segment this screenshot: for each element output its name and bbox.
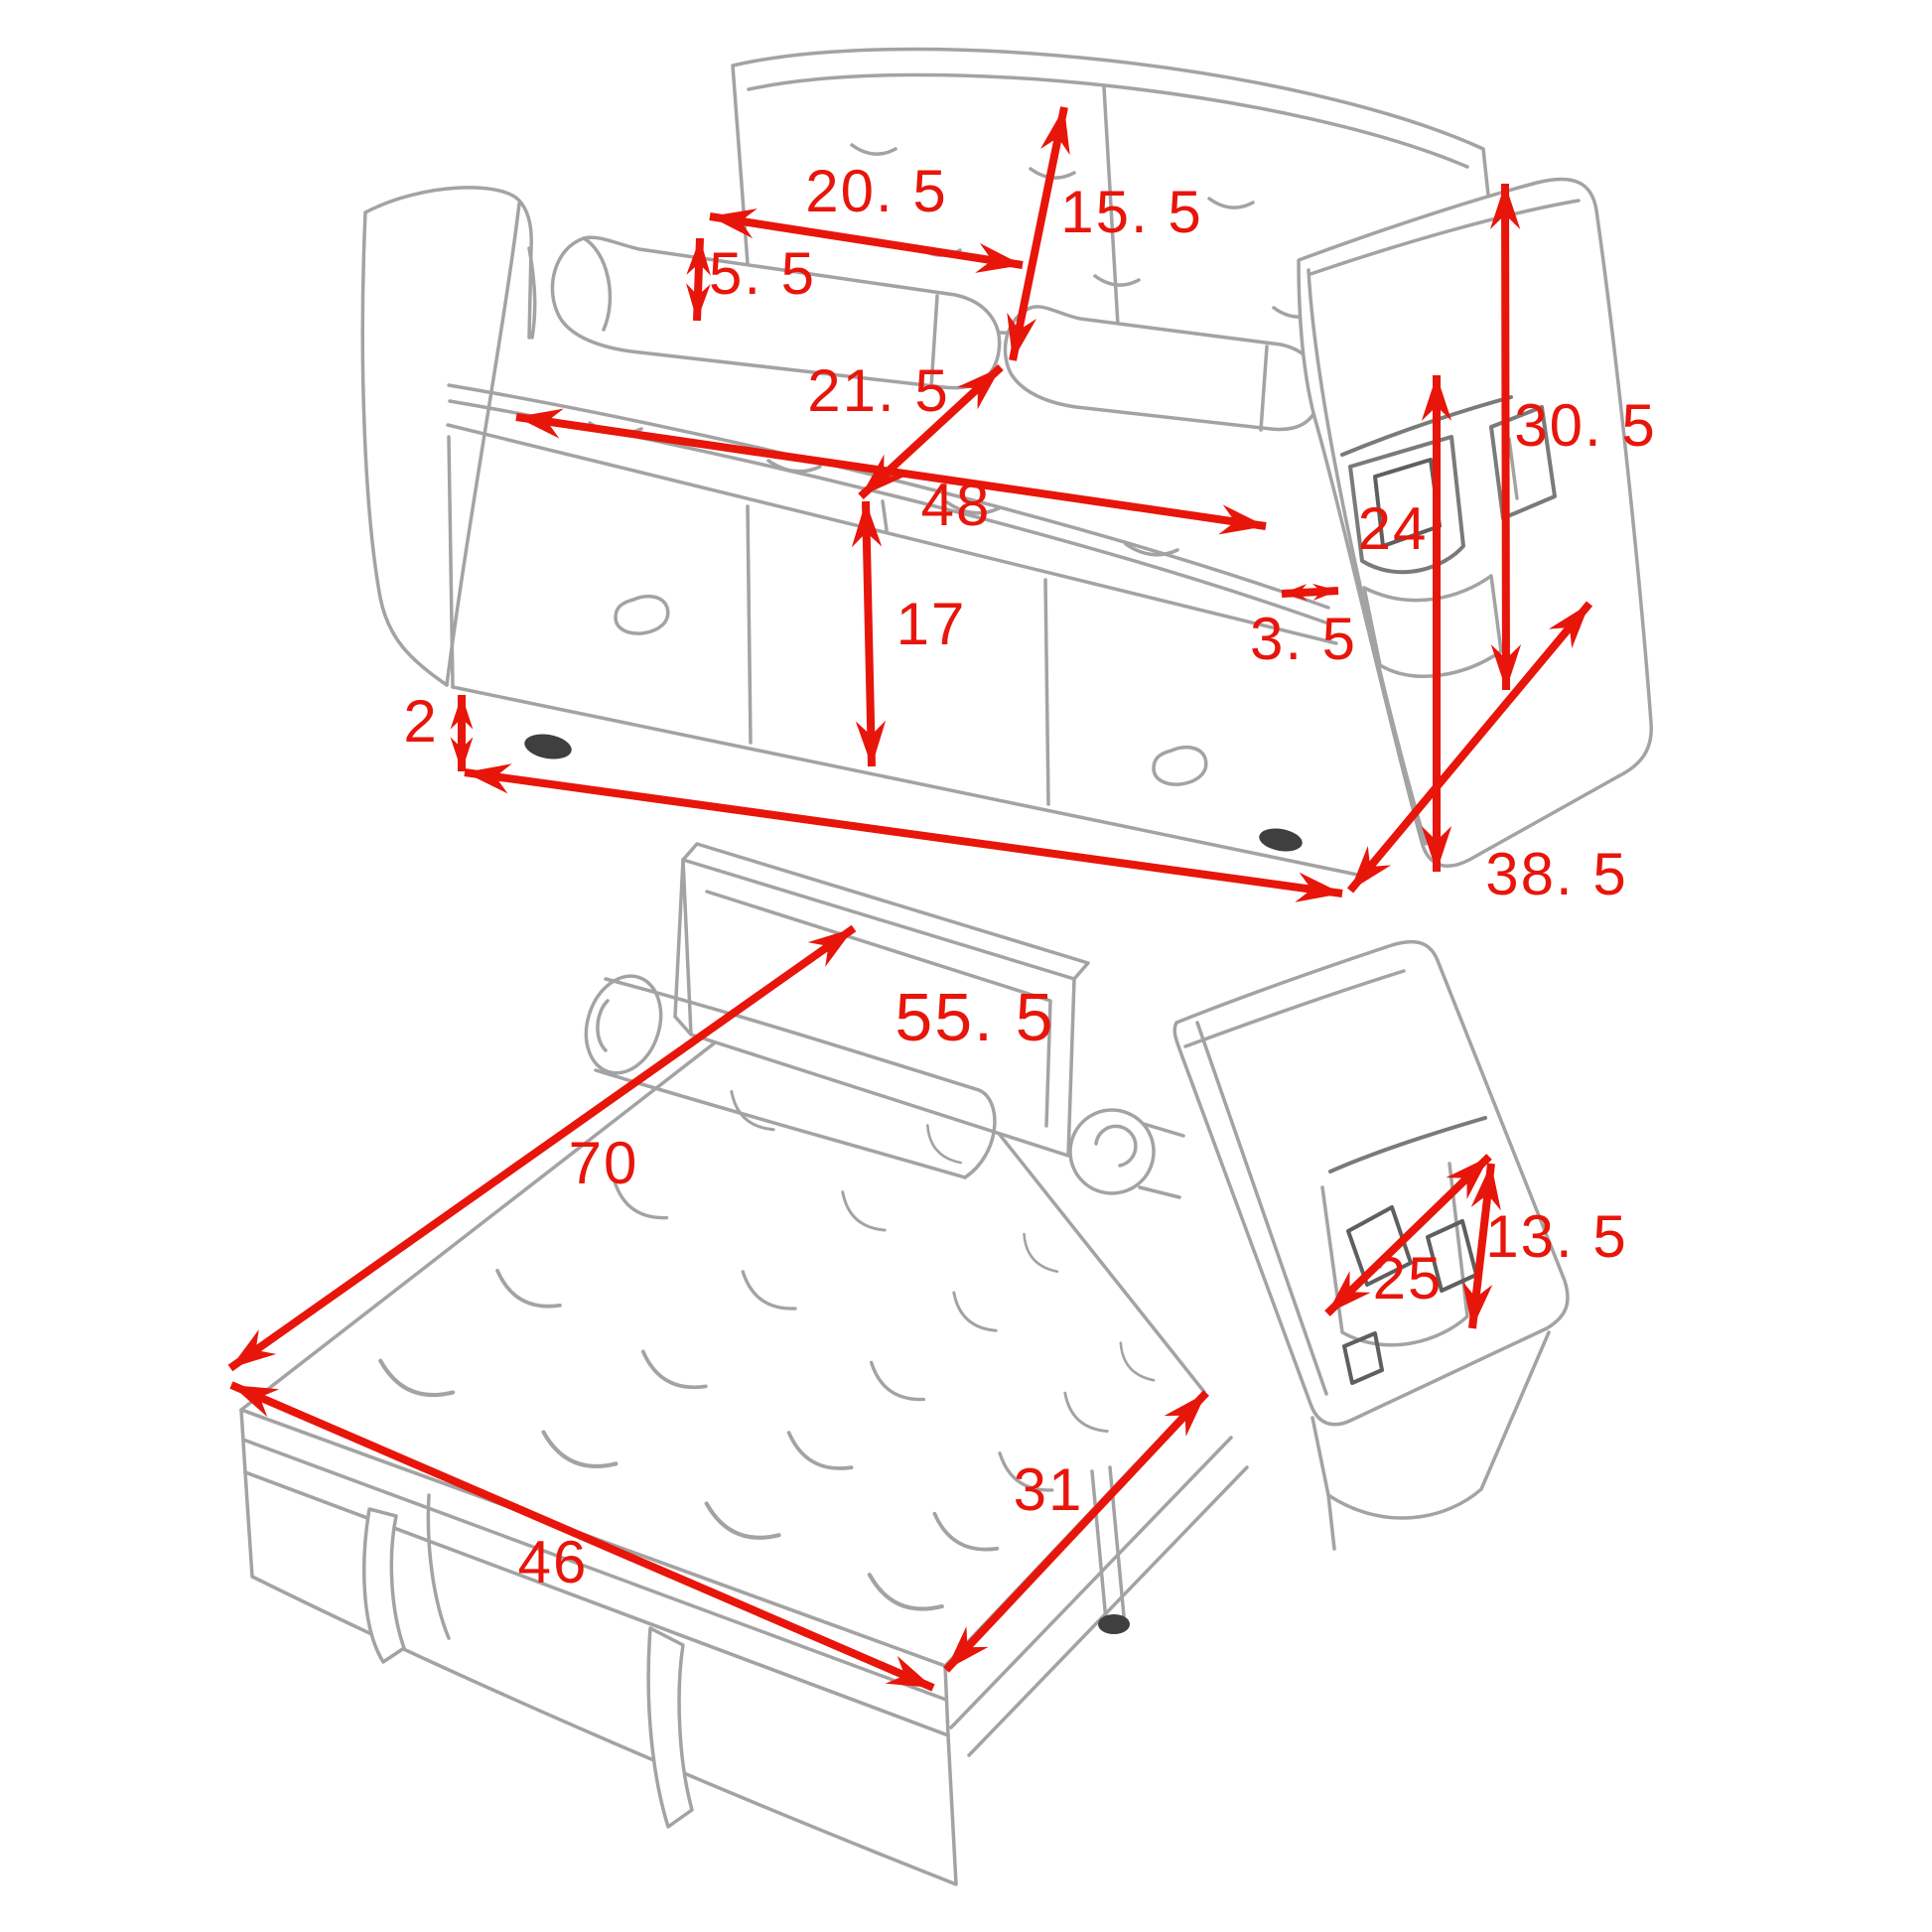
bed-right-arm-outline <box>1174 942 1568 1425</box>
arrowhead-icon <box>230 1329 276 1368</box>
base-handle-left <box>616 597 668 633</box>
front-right-foot <box>1257 825 1304 854</box>
dimension-label: 15. 5 <box>1060 179 1202 245</box>
dimension-label: 2 <box>403 688 438 755</box>
dimension-48: 48 <box>516 409 1266 538</box>
dimension-2: 2 <box>403 688 473 771</box>
dimension-label: 70 <box>569 1130 639 1196</box>
dimension-line <box>866 501 872 766</box>
dimension-label: 46 <box>518 1529 589 1595</box>
second-bolster-end-cap <box>1070 1110 1154 1193</box>
left-arm-front-edge <box>447 204 519 685</box>
sofa-compact-sketch <box>362 50 1651 876</box>
dimension-label: 24 <box>1358 495 1429 562</box>
dimension-label: 21. 5 <box>807 357 949 424</box>
dimension-label: 20. 5 <box>805 158 947 224</box>
dimension-label: 17 <box>897 591 967 657</box>
dimension-label: 48 <box>921 472 992 538</box>
dimension-label: 13. 5 <box>1485 1203 1627 1270</box>
right-arm-outline <box>1299 179 1651 866</box>
dimension-label: 31 <box>1014 1456 1084 1523</box>
dimension-label: 38. 5 <box>1485 841 1627 907</box>
second-bolster-bottom-edge <box>1140 1187 1179 1197</box>
dimension-line <box>465 772 1342 894</box>
dimension-label: 55. 5 <box>895 980 1054 1055</box>
dimension-line <box>1505 184 1506 690</box>
seat-cushion-divider <box>883 501 887 530</box>
dimension-3-5: 3. 5 <box>1250 584 1357 672</box>
base-bottom-edge <box>453 687 1362 876</box>
dimension-label: 3. 5 <box>1250 606 1357 672</box>
pullout-frame-foot <box>1098 1614 1130 1634</box>
sofa-dimension-diagram: 20. 515. 55. 521. 548173. 522430. 538. 5… <box>0 0 1932 1932</box>
base-top-joint <box>448 425 1336 643</box>
left-arm-outer-edge <box>362 212 447 685</box>
dimension-label: 30. 5 <box>1514 392 1656 459</box>
dimension-line <box>516 417 1266 526</box>
base-handle-right <box>1154 748 1206 784</box>
base-seam-2 <box>1045 580 1048 804</box>
dimension-label: 5. 5 <box>709 240 816 307</box>
diagram-canvas: 20. 515. 55. 521. 548173. 522430. 538. 5… <box>0 0 1932 1932</box>
base-seam-1 <box>748 506 751 743</box>
dimension-label: 25 <box>1373 1245 1444 1311</box>
left-arm-top-roll <box>365 188 531 338</box>
base-left-edge <box>449 437 453 687</box>
bed-arm-base-corner <box>1328 1495 1334 1549</box>
dimension-17: 17 <box>852 501 967 766</box>
front-left-foot <box>522 731 573 762</box>
